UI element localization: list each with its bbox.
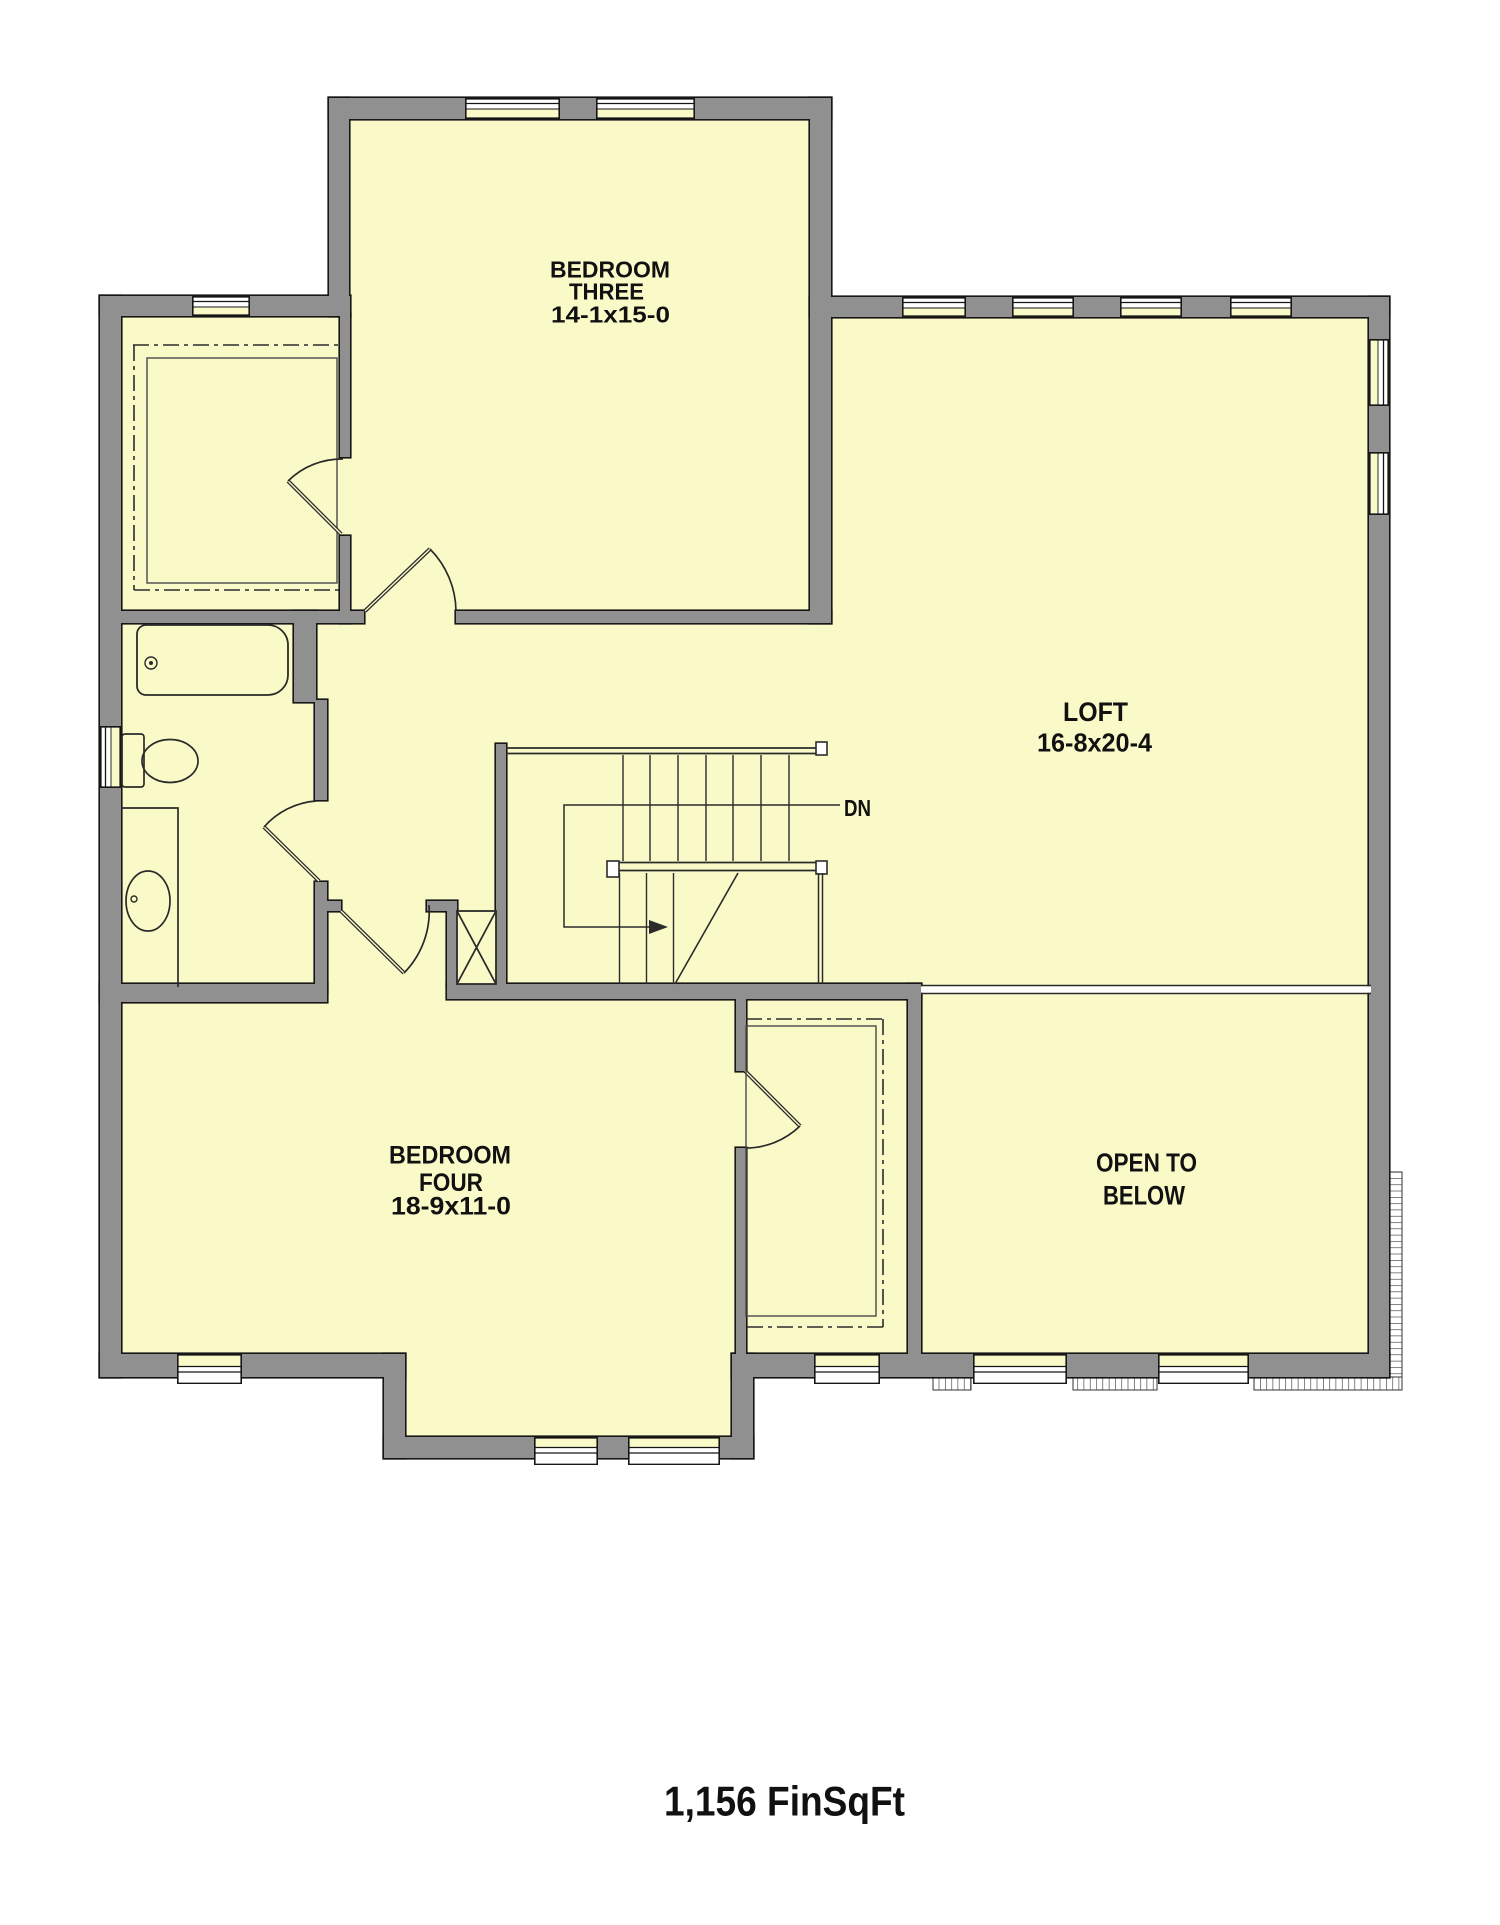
svg-text:16-8x20-4: 16-8x20-4 <box>1037 728 1153 758</box>
svg-text:OPEN TO: OPEN TO <box>1096 1148 1197 1178</box>
svg-text:BELOW: BELOW <box>1103 1181 1185 1211</box>
svg-text:14-1x15-0: 14-1x15-0 <box>551 302 670 328</box>
svg-text:1,156 FinSqFt: 1,156 FinSqFt <box>664 1778 905 1825</box>
svg-text:LOFT: LOFT <box>1063 697 1128 727</box>
svg-text:DN: DN <box>844 795 871 821</box>
svg-text:18-9x11-0: 18-9x11-0 <box>391 1193 511 1221</box>
svg-text:BEDROOM: BEDROOM <box>389 1142 511 1170</box>
